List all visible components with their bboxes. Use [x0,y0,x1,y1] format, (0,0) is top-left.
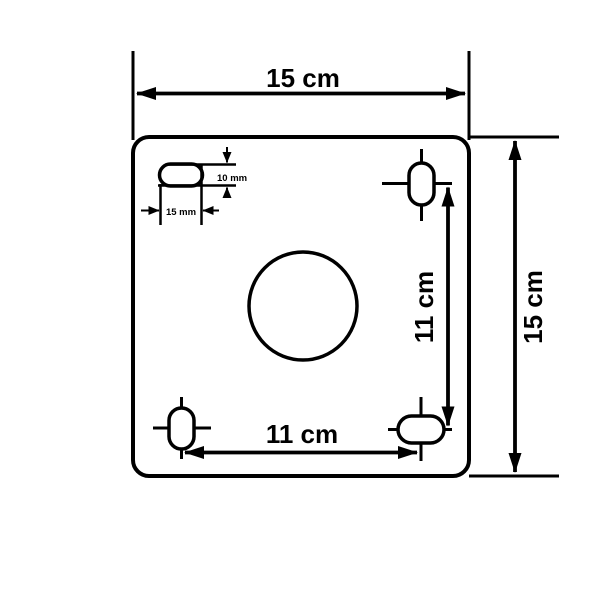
slot-bottom-right [398,416,444,443]
plate-dimension-drawing: 15 cm 15 cm 11 cm 11 cm 10 mm [0,0,600,600]
center-hole [249,252,357,360]
dim-label-plate-height: 15 cm [518,270,548,344]
slot-top-left [160,164,203,186]
dim-label-plate-width: 15 cm [266,63,340,93]
dim-label-hole-spacing-vertical: 11 cm [409,271,439,343]
dim-plate-height: 15 cm [469,137,559,476]
dim-label-slot-height: 10 mm [217,173,247,184]
dim-label-slot-width: 15 mm [166,207,196,218]
dim-plate-width: 15 cm [133,51,469,140]
dim-label-hole-spacing-horizontal: 11 cm [266,419,338,449]
slot-bottom-left [169,408,194,449]
diagram-canvas: 15 cm 15 cm 11 cm 11 cm 10 mm [0,0,600,600]
slot-top-right [409,163,434,205]
